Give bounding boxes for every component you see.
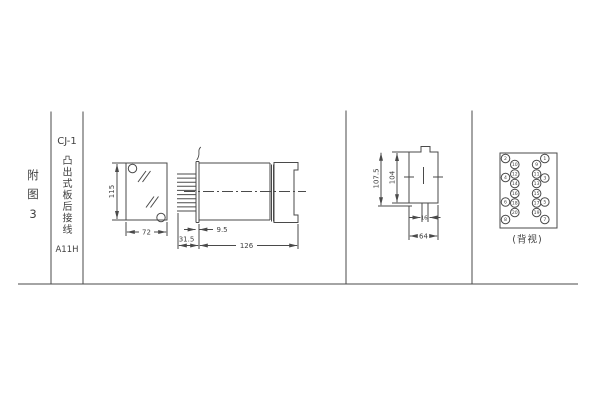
terminal-pin: 16 (511, 189, 520, 198)
dimension-16: 16 (410, 216, 441, 222)
terminal-pin: 6 (501, 198, 510, 207)
dimension-9-5: 9.5 (184, 226, 228, 234)
terminal-pin: 13 (532, 179, 541, 188)
svg-text:9: 9 (535, 162, 538, 168)
dimension-64: 64 (409, 205, 438, 241)
mounting-hole-top-left (128, 164, 136, 172)
terminal-pins-comb (177, 174, 196, 211)
svg-text:18: 18 (512, 201, 518, 207)
dimension-126: 126 (200, 224, 298, 250)
front-view-drawing: 115 72 (108, 163, 167, 237)
terminal-pin: 2 (501, 154, 510, 163)
code-label: A11H (51, 245, 83, 255)
svg-text:10: 10 (512, 162, 518, 168)
rear-view-caption: (背视) (512, 234, 542, 246)
svg-text:3: 3 (543, 176, 546, 182)
technical-drawing: 115 72 (0, 0, 600, 400)
side-view-drawing: 9.5 31.5 126 (177, 147, 306, 250)
svg-text:20: 20 (512, 210, 518, 216)
svg-text:13: 13 (534, 181, 540, 187)
svg-text:16: 16 (512, 191, 518, 197)
terminal-pin: 10 (511, 160, 520, 169)
dim-label-64: 64 (419, 233, 428, 241)
terminal-pin: 9 (532, 160, 541, 169)
terminal-pin: 11 (532, 170, 541, 179)
terminal-pin: 1 (541, 154, 550, 163)
terminal-pin: 4 (501, 173, 510, 182)
wiring-type-label: 凸出式板后接线 (58, 155, 73, 236)
terminal-pin: 3 (541, 174, 550, 183)
svg-text:11: 11 (534, 172, 540, 178)
svg-text:14: 14 (512, 181, 518, 187)
terminal-pin: 20 (511, 208, 520, 217)
dimension-72: 72 (126, 222, 167, 237)
svg-text:12: 12 (512, 172, 518, 178)
dim-label-104: 104 (389, 170, 397, 184)
mounting-flange (196, 162, 199, 223)
dim-label-9-5: 9.5 (217, 226, 228, 234)
terminal-pin: 8 (501, 215, 510, 224)
svg-text:8: 8 (504, 217, 507, 223)
terminal-pin: 17 (532, 199, 541, 208)
dim-label-72: 72 (142, 229, 151, 237)
terminal-pin: 15 (532, 189, 541, 198)
relay-body-outline (199, 163, 298, 223)
svg-text:5: 5 (543, 200, 546, 206)
rear-outline-drawing: 107.5 104 16 64 (373, 147, 444, 241)
svg-text:15: 15 (534, 191, 540, 197)
dim-label-115: 115 (108, 185, 116, 198)
terminal-pin: 19 (532, 208, 541, 217)
terminal-pin: 18 (511, 199, 520, 208)
front-plate-outline (126, 163, 167, 220)
dim-label-107-5: 107.5 (373, 168, 381, 188)
dimension-104: 104 (389, 153, 410, 203)
terminal-pin: 12 (511, 170, 520, 179)
svg-text:19: 19 (534, 210, 540, 216)
figure-canvas: 115 72 (0, 0, 600, 400)
svg-text:17: 17 (534, 201, 540, 207)
center-marks (404, 167, 443, 184)
svg-text:1: 1 (543, 156, 546, 162)
terminal-panel-drawing: 2 4 6 8 10 12 14 16 18 20 9 (500, 153, 557, 246)
hatch-marks (138, 171, 159, 208)
dim-label-126: 126 (240, 242, 254, 250)
svg-text:4: 4 (504, 175, 507, 181)
svg-text:7: 7 (543, 217, 546, 223)
terminal-pin: 14 (511, 179, 520, 188)
break-line-symbol (197, 147, 201, 160)
terminal-pin: 5 (541, 198, 550, 207)
dimension-115: 115 (108, 163, 126, 220)
sheet-border (18, 111, 578, 285)
terminal-pin: 7 (541, 215, 550, 224)
svg-text:2: 2 (504, 156, 507, 162)
dim-label-31-5: 31.5 (179, 236, 195, 244)
model-label: CJ-1 (51, 136, 83, 147)
dim-label-16: 16 (421, 216, 428, 222)
figure-number-label: 附图3 (25, 169, 41, 229)
svg-text:6: 6 (504, 200, 507, 206)
